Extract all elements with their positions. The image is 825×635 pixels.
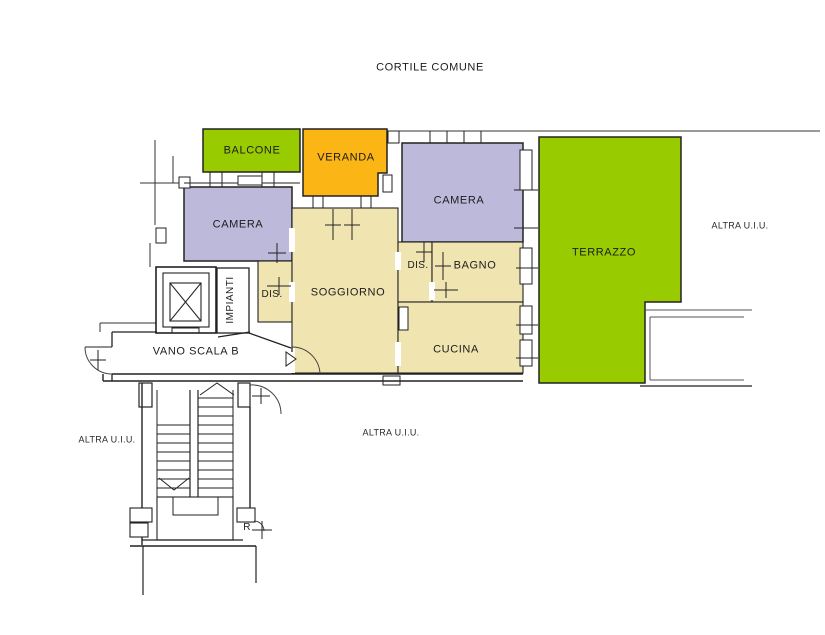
other-unit-right-label: ALTRA U.I.U.: [712, 222, 769, 231]
storage-r-label: R: [243, 523, 251, 533]
elevator: [156, 267, 216, 333]
corridor-left-door: [85, 347, 112, 374]
lower-balcony-detail: [640, 310, 752, 386]
dis1-label: DIS.: [261, 290, 282, 300]
balcone-label: BALCONE: [224, 146, 281, 157]
room-camera2-area: [402, 143, 523, 242]
floor-plan: CORTILE COMUNE BALCONE VERANDA CAMERA CA…: [0, 0, 825, 635]
bagno-label: BAGNO: [454, 261, 497, 272]
courtyard-label: CORTILE COMUNE: [376, 63, 484, 74]
cucina-label: CUCINA: [433, 345, 479, 356]
staircase: [130, 383, 281, 595]
impianti-label: IMPIANTI: [226, 276, 236, 323]
camera2-label: CAMERA: [434, 196, 485, 207]
other-unit-left-label: ALTRA U.I.U.: [79, 436, 136, 445]
other-unit-center-label: ALTRA U.I.U.: [363, 429, 420, 438]
radiator-symbol: [399, 307, 408, 330]
terrazzo-label: TERRAZZO: [572, 248, 636, 259]
room-cucina-area: [398, 302, 523, 373]
dis2-label: DIS.: [407, 261, 428, 271]
camera1-label: CAMERA: [213, 220, 264, 231]
vano-scala-label: VANO SCALA B: [153, 347, 239, 358]
soggiorno-label: SOGGIORNO: [311, 288, 385, 299]
room-dis2-area: [398, 242, 432, 302]
veranda-label: VERANDA: [317, 153, 374, 164]
room-terrazzo-area: [539, 137, 681, 383]
floor-plan-canvas: [0, 0, 825, 635]
bottom-walls: [103, 374, 523, 381]
